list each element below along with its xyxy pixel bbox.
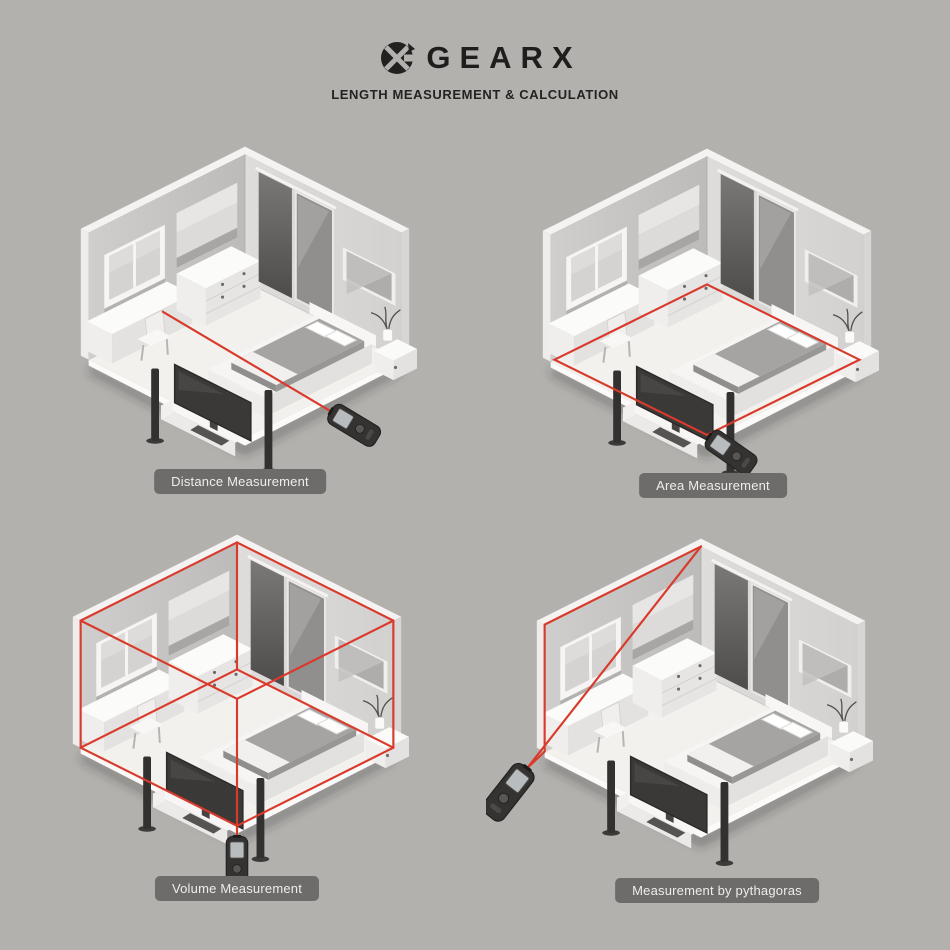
figure-area: [492, 132, 922, 513]
label-pythagoras-measurement: Measurement by pythagoras: [615, 878, 819, 903]
brand-title: GEARX: [426, 40, 581, 76]
label-area-measurement: Area Measurement: [639, 473, 787, 498]
header: GEARX LENGTH MEASUREMENT & CALCULATION: [0, 38, 950, 102]
infographic-page: GEARX LENGTH MEASUREMENT & CALCULATION: [0, 0, 950, 950]
figure-volume: [22, 518, 452, 899]
room-illustration-area: [492, 132, 922, 513]
label-distance-measurement: Distance Measurement: [154, 469, 326, 494]
figure-pythagoras: [486, 522, 916, 903]
header-subtitle: LENGTH MEASUREMENT & CALCULATION: [0, 87, 950, 102]
room-illustration-pythagoras: [486, 522, 916, 903]
laser-device: [324, 401, 383, 449]
label-volume-measurement: Volume Measurement: [155, 876, 319, 901]
gearx-logo-icon: [377, 38, 417, 78]
figure-distance: [30, 130, 460, 511]
room-illustration-distance: [30, 130, 460, 511]
room-illustration-volume: [22, 518, 452, 899]
laser-device: [486, 759, 538, 824]
